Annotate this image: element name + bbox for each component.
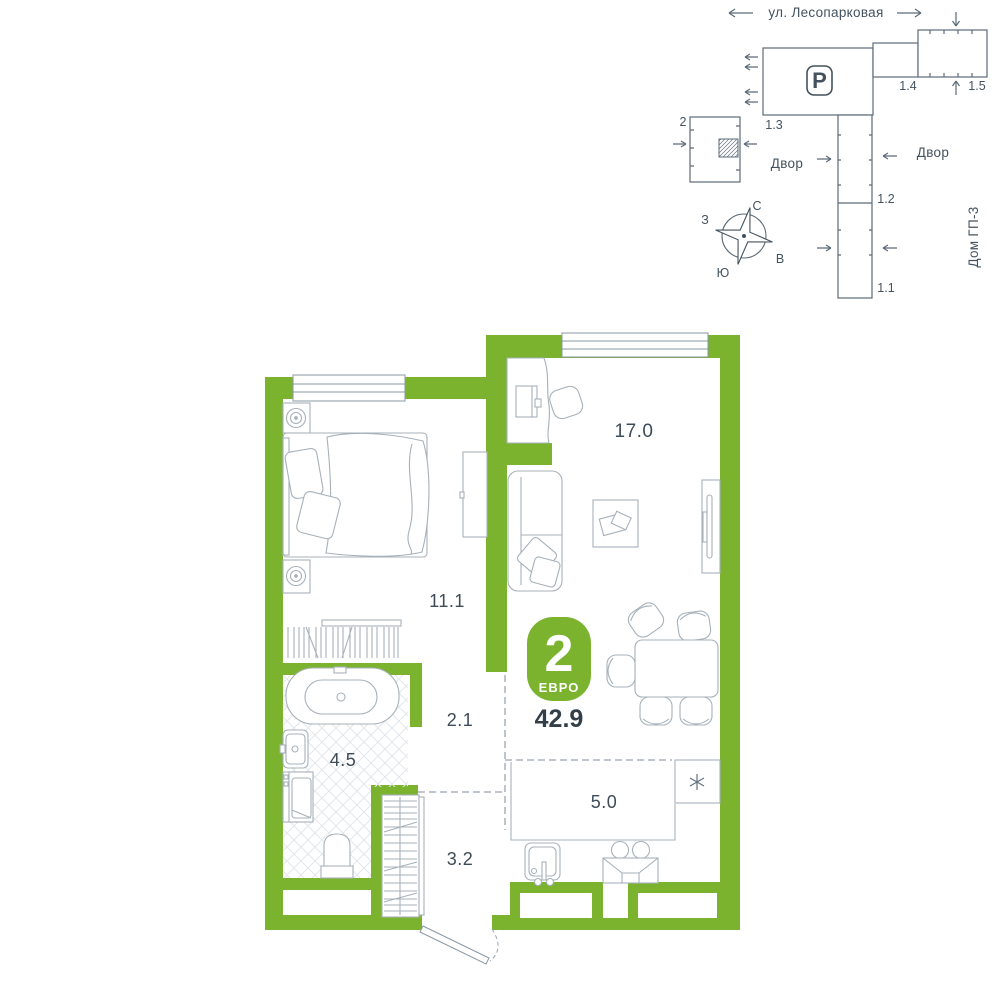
faucet-icon — [542, 862, 546, 880]
dining-chair — [625, 599, 667, 640]
street-label: ул. Лесопарковая — [768, 5, 883, 20]
building-1-4 — [873, 43, 918, 77]
badge-layout-type: ЕВРО — [539, 680, 580, 695]
toilet — [321, 834, 353, 878]
building-2-label: 2 — [680, 115, 687, 129]
arrow-east-icon — [897, 9, 921, 17]
wall-niche — [520, 893, 592, 918]
arrow-left-icon — [744, 141, 757, 147]
bedroom-window — [293, 375, 405, 401]
coffee-table — [593, 500, 638, 547]
monitor-icon — [516, 386, 541, 417]
floor-plan: 11.1 — [265, 333, 740, 964]
yard-label: Двор — [917, 145, 949, 160]
floorplan-canvas: 11.1 — [0, 0, 1000, 1000]
wall-pier-1 — [510, 893, 520, 918]
sofa — [508, 471, 562, 591]
total-area: 42.9 — [535, 705, 584, 733]
entry-area-label: 3.2 — [447, 849, 474, 869]
wall-closet-left — [371, 785, 382, 928]
compass-icon: С З В Ю — [701, 199, 784, 280]
washing-machine — [283, 772, 313, 822]
wall-living-stub — [507, 443, 552, 465]
building-1-4-label: 1.4 — [899, 79, 916, 93]
floorplan-page: 11.1 — [0, 0, 1000, 1000]
building-1-3-label: 1.3 — [765, 118, 782, 132]
building-2-hatch — [719, 139, 738, 157]
wall-pier-2 — [592, 882, 603, 918]
dining-chair — [676, 610, 712, 642]
building-column — [838, 115, 872, 298]
fridge-spot — [675, 760, 720, 803]
entry-closet: 3.2 — [382, 795, 473, 917]
hall-area-label: 2.1 — [447, 710, 474, 730]
dining-chair — [680, 697, 712, 725]
arrow-right-icon — [673, 141, 686, 147]
building-1-5 — [918, 30, 987, 77]
kitchen-sink — [525, 843, 560, 886]
tv-stand — [702, 480, 720, 573]
bedroom-area-label: 11.1 — [429, 591, 465, 611]
building-1-5-label: 1.5 — [968, 79, 985, 93]
wall-right — [720, 335, 740, 930]
bedroom: 11.1 — [283, 403, 487, 658]
dresser — [463, 452, 487, 537]
dining-chair — [607, 655, 635, 687]
badge-rooms-count: 2 — [545, 625, 574, 683]
tv-icon — [707, 495, 712, 558]
living-area-label: 17.0 — [615, 421, 654, 442]
entrance-arrows-icon — [745, 54, 758, 105]
building-1-1-label: 1.1 — [877, 281, 894, 295]
entrance-door — [420, 926, 498, 964]
vent-shaft — [603, 882, 628, 918]
desk-chair — [547, 384, 584, 421]
door-swing-arc — [490, 929, 498, 961]
dresser-handle — [460, 492, 464, 498]
living-window — [562, 333, 708, 357]
door-leaf — [420, 926, 489, 964]
wall-left — [265, 377, 283, 930]
compass-north: С — [752, 199, 761, 213]
plan-badge: 2 ЕВРО 42.9 — [527, 617, 591, 733]
burner-icon — [612, 842, 629, 859]
parking-icon: P — [807, 66, 832, 95]
kitchen: 5.0 — [511, 760, 720, 886]
clothes-rack — [288, 620, 401, 658]
wall-pier-4 — [717, 893, 740, 918]
stove — [603, 842, 658, 884]
wall-niche — [283, 890, 371, 915]
svg-text:P: P — [812, 68, 827, 93]
compass-south: Ю — [717, 266, 730, 280]
arrow-down-icon — [953, 12, 960, 26]
arrow-up-icon — [953, 81, 960, 95]
building-1-2-label: 1.2 — [877, 192, 894, 206]
wall-pier-3 — [628, 882, 638, 918]
wall-bath-bottom — [283, 878, 371, 890]
yard-label: Двор — [771, 156, 803, 171]
house-label: Дом ГП-3 — [966, 206, 981, 267]
wall-bath-nib — [410, 663, 422, 727]
dining-table — [635, 640, 718, 697]
bathroom-sink — [280, 730, 308, 768]
duvet — [326, 433, 429, 556]
kitchen-area-label: 5.0 — [591, 792, 618, 812]
wall-niche — [638, 893, 717, 918]
site-plan: ул. Лесопарковая P 1.3 1.4 1.5 2 1.2 1 — [673, 5, 987, 298]
dining-chair — [640, 697, 672, 725]
bathroom-area-label: 4.5 — [330, 750, 357, 770]
bathtub — [286, 667, 399, 724]
compass-east: В — [776, 252, 784, 266]
compass-west: З — [701, 213, 709, 227]
dining-set — [607, 599, 718, 725]
arrow-west-icon — [729, 9, 753, 17]
bed — [283, 433, 429, 557]
burner-icon — [633, 842, 650, 859]
wall-divider — [486, 335, 507, 672]
